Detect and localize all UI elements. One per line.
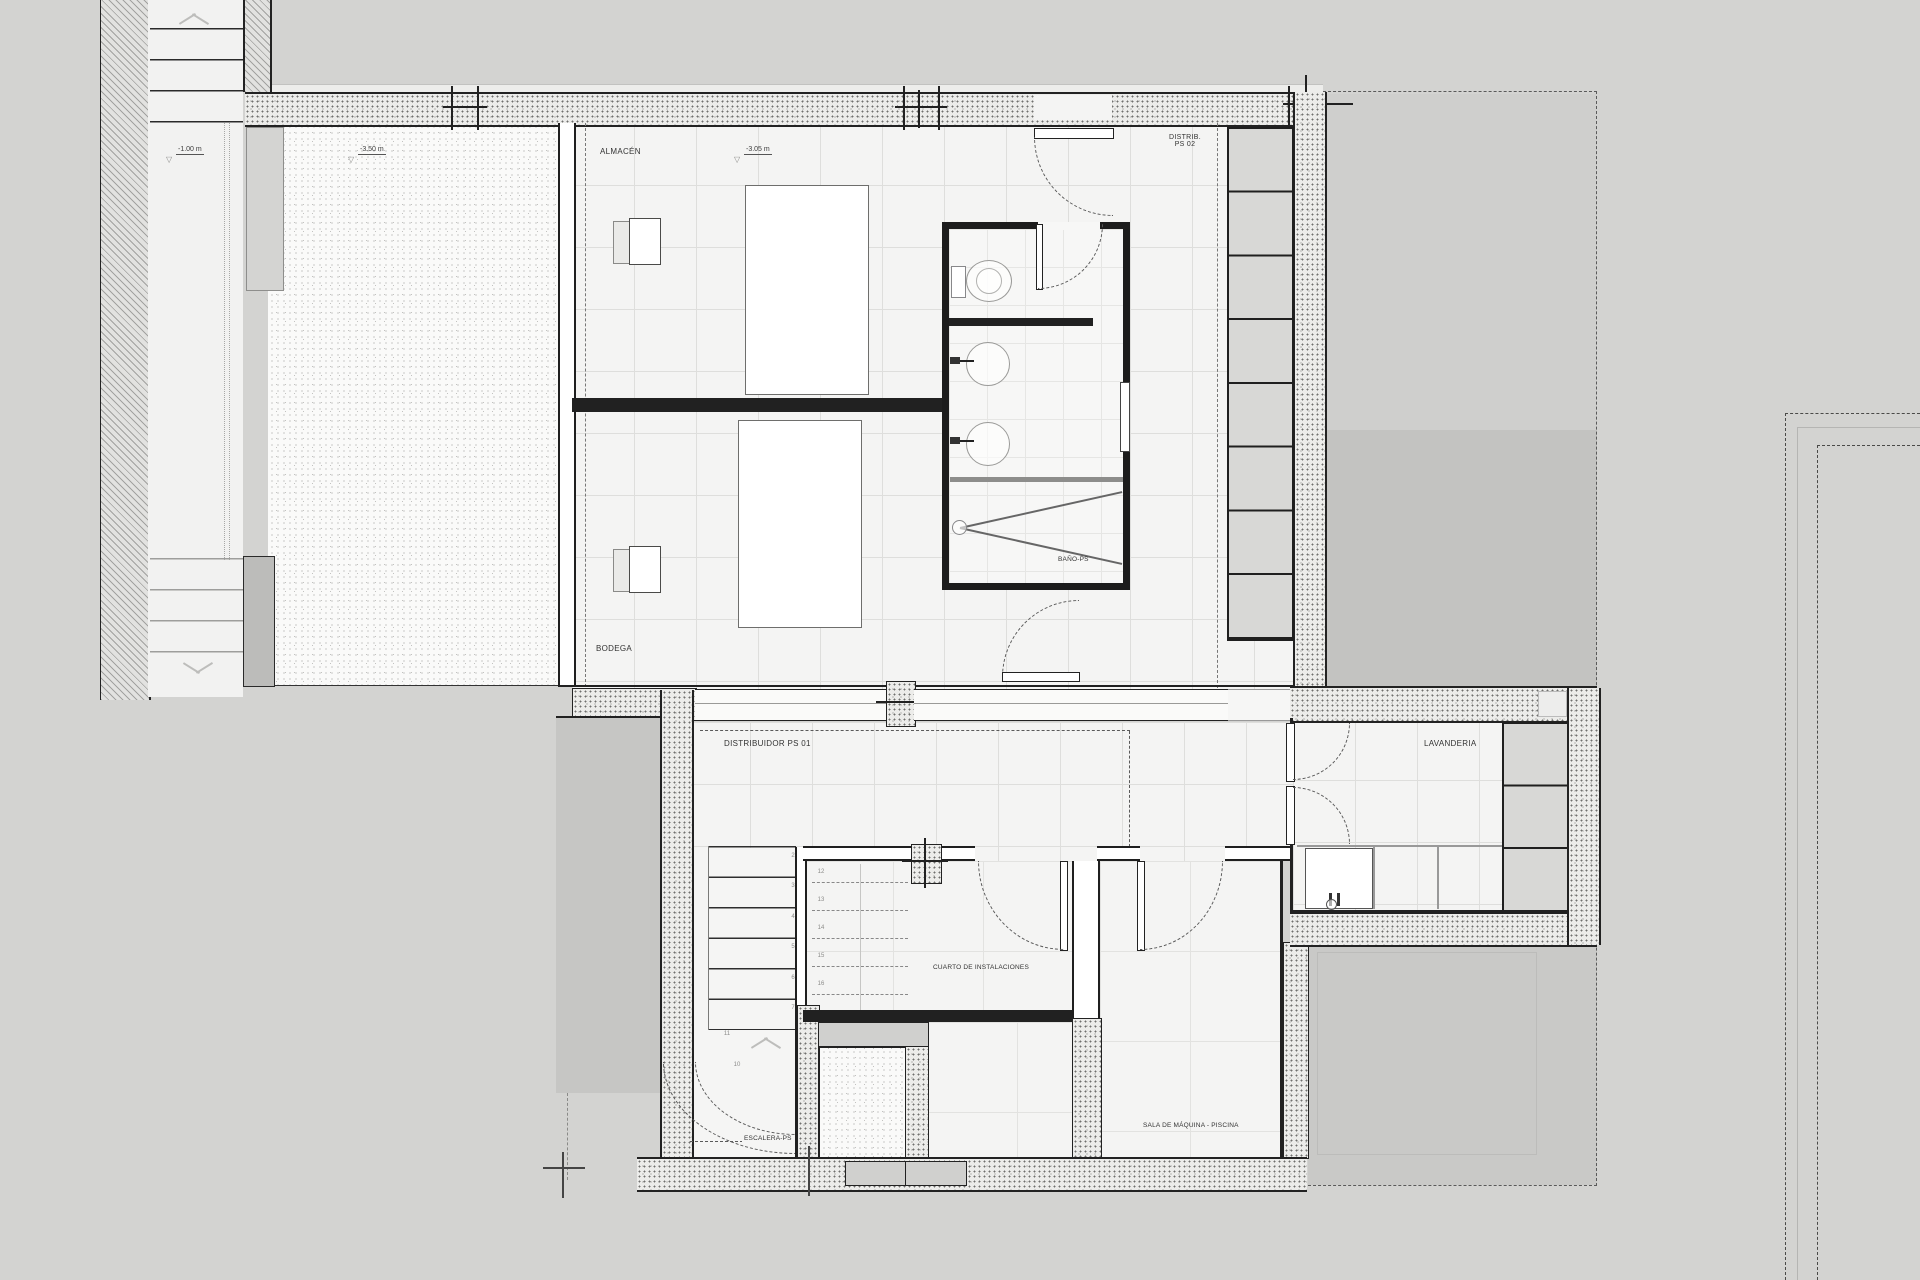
faucet-icon (1337, 893, 1340, 906)
faucet-stub (960, 440, 974, 442)
counter-divider (1373, 845, 1375, 909)
level-triangle-icon: ▽ (166, 155, 172, 164)
band-gray-cell (845, 1161, 907, 1186)
terrace-outline-bottom (1308, 1185, 1597, 1186)
pool-edge-line (1817, 445, 1920, 446)
sink-basin (966, 342, 1010, 386)
stair-number: 5 (786, 944, 800, 950)
wall-sala-east (1283, 942, 1309, 1159)
band-tick (808, 1146, 810, 1196)
wall-niche (1120, 382, 1130, 452)
level-marker-almacen: -3.05 m (744, 146, 772, 155)
room-label-distrib-ps02: DISTRIB. PS 02 (1150, 134, 1220, 148)
faucet-icon (950, 437, 960, 444)
pit-gravel (818, 1046, 909, 1161)
level-triangle-icon: ▽ (734, 155, 740, 164)
pier-line (918, 90, 920, 128)
earth-top-line (556, 716, 660, 718)
stair-treads-left-edge (708, 846, 709, 1030)
washer-dryer-column (1502, 722, 1569, 914)
wall-gap-light (1538, 691, 1567, 717)
room-label-almacen: ALMACÉN (600, 147, 641, 156)
stair-number: 11 (720, 1031, 734, 1037)
wall-right (1293, 92, 1327, 690)
band-tick (562, 1152, 564, 1198)
wall-lavanderia-east (1567, 688, 1601, 945)
wall-lavanderia-south (1290, 914, 1597, 947)
pier-tick (895, 106, 947, 108)
window-band (914, 689, 1228, 721)
pier-tick (443, 106, 487, 108)
wall-bottom-band (637, 1157, 1307, 1192)
wall-left-hatched (100, 0, 151, 700)
patio-retaining-wall (243, 556, 275, 687)
stair-number: 13 (814, 897, 828, 903)
wall-cuarto-east-lower (1072, 1018, 1102, 1159)
band-tick (543, 1167, 585, 1169)
faucet-stub (960, 360, 974, 362)
room-label-escalera: ESCALERA-PS (742, 1135, 794, 1142)
wall-mid-bedrooms (572, 398, 942, 412)
wall-pier (886, 681, 916, 727)
faucet-icon (950, 357, 960, 364)
door-leaf (1002, 672, 1080, 682)
nightstand (629, 218, 661, 265)
stair-number: 4 (786, 914, 800, 920)
chevron-up-icon (750, 1036, 782, 1051)
room-label-line2: PS 02 (1175, 141, 1196, 148)
closet-shelving-column (1227, 127, 1294, 641)
wall-sala-north (1097, 846, 1140, 861)
pit-edge-band (818, 1022, 929, 1048)
wall-band-edge (558, 685, 1293, 687)
corner-pier-line (1288, 86, 1290, 130)
stair-number: 12 (814, 869, 828, 875)
exterior-stair-treads-bottom (150, 558, 243, 658)
room-label-bodega: BODEGA (596, 644, 632, 653)
grid-dashdot-line (1217, 123, 1218, 688)
stair-number: 6 (786, 975, 800, 981)
pool-edge-faint (1797, 427, 1920, 428)
bed (738, 420, 862, 628)
toilet-bowl-inner (976, 268, 1002, 294)
counter-divider (1437, 845, 1439, 909)
shower-drain (952, 520, 967, 535)
terrace-fill-mid (1323, 430, 1597, 688)
pier-tick (924, 838, 926, 888)
ceiling-dashed-line (1129, 731, 1130, 847)
room-label-line1: DISTRIB. (1169, 134, 1201, 141)
guide-dotted-1 (224, 123, 225, 560)
nightstand (629, 546, 661, 593)
shower-glass-line (950, 477, 1123, 482)
pool-edge-faint (1797, 427, 1798, 1280)
stair-number: 3 (786, 883, 800, 889)
sink-basin (966, 422, 1010, 466)
drain-icon (1326, 899, 1337, 910)
window-band-midline (695, 703, 888, 704)
pool-edge-line (1817, 445, 1818, 1280)
counter-line (1297, 845, 1502, 847)
pier-line (938, 86, 940, 130)
room-label-distribuidor-ps01: DISTRIBUIDOR PS 01 (724, 739, 811, 748)
stair-number: 16 (814, 981, 828, 987)
wall-sala-north (1225, 846, 1293, 861)
stair-number: 14 (814, 925, 828, 931)
chevron-up-icon (178, 12, 210, 27)
room-label-bano: BAÑO-PS (1058, 556, 1089, 563)
terrace-paving-inset (1317, 952, 1537, 1155)
wall-cuarto-east (1072, 861, 1100, 1018)
terrace-outline-right (1596, 91, 1597, 1186)
wall-pit-east (905, 1046, 929, 1159)
floor-sala-west (927, 1022, 1072, 1157)
patio-slab (246, 127, 284, 291)
toilet-tank (951, 266, 966, 298)
patio-gravel (268, 123, 558, 686)
terrace-fill-upper (1323, 94, 1597, 430)
wall-cuarto-south (803, 1010, 1072, 1022)
pier-line (903, 86, 905, 130)
bed (745, 185, 869, 395)
room-label-sala: SALA DE MÁQUINA - PISCINA (1143, 1122, 1239, 1129)
stair-number: 15 (814, 953, 828, 959)
window-band (695, 689, 888, 721)
door-threshold (1228, 689, 1290, 721)
pool-edge-line (1785, 413, 1920, 414)
wall-pier (911, 844, 942, 884)
chevron-down-icon (182, 660, 214, 675)
stair-number: 7 (786, 1005, 800, 1011)
door-gap-top-wall (1034, 95, 1112, 120)
wall-lavanderia-west (1290, 843, 1293, 912)
window-band-midline (914, 703, 1228, 704)
floor-plan-canvas: -1.00 m ▽ -3.50 m ▽ -3.05 m ▽ DISTRIB. P… (0, 0, 1920, 1280)
earth-fill (556, 718, 660, 1093)
wall-cuarto-north (803, 846, 975, 861)
exterior-stair-treads-top (150, 28, 243, 124)
bathroom-partition (949, 318, 1093, 326)
room-label-cuarto: CUARTO DE INSTALACIONES (933, 964, 1029, 971)
overhead-stair-edge (860, 864, 861, 1010)
ceiling-dashed-line (700, 730, 1130, 731)
wall-shaft-right (243, 0, 272, 92)
stair-treads (708, 846, 796, 1030)
level-marker-patio: -3.50 m (358, 146, 386, 155)
band-gray-cell (905, 1161, 967, 1186)
terrace-outline-top (1323, 91, 1597, 92)
pier-line (451, 86, 453, 130)
level-triangle-icon: ▽ (348, 155, 354, 164)
room-label-lavanderia: LAVANDERIA (1424, 739, 1477, 748)
pool-edge-line (1785, 413, 1786, 1280)
wall-top (245, 92, 1323, 127)
guide-dotted-2 (229, 123, 230, 560)
wall-pit-west (797, 1005, 820, 1159)
pier-line (477, 86, 479, 130)
level-marker-outside: -1.00 m (176, 146, 204, 155)
stair-number: 2 (786, 853, 800, 859)
